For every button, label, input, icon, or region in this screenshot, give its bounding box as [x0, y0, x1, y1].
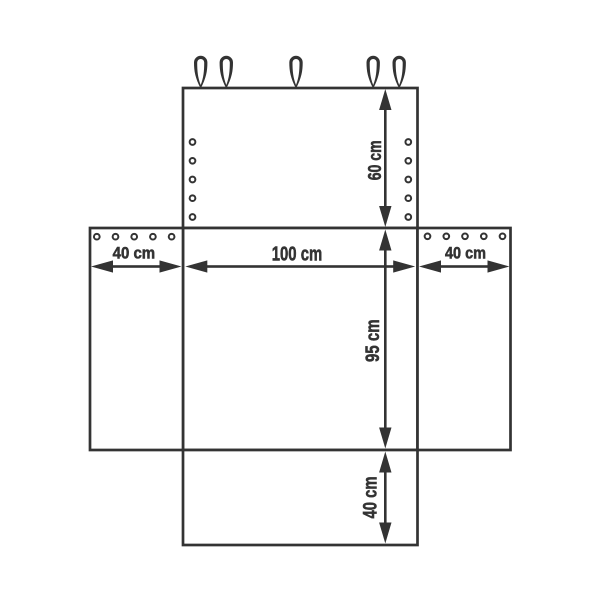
svg-text:40 cm: 40 cm: [445, 245, 486, 263]
svg-text:40 cm: 40 cm: [360, 477, 382, 519]
svg-text:40 cm: 40 cm: [113, 245, 156, 263]
svg-text:100 cm: 100 cm: [272, 243, 323, 265]
svg-text:95 cm: 95 cm: [363, 319, 384, 362]
svg-text:60 cm: 60 cm: [364, 140, 385, 180]
